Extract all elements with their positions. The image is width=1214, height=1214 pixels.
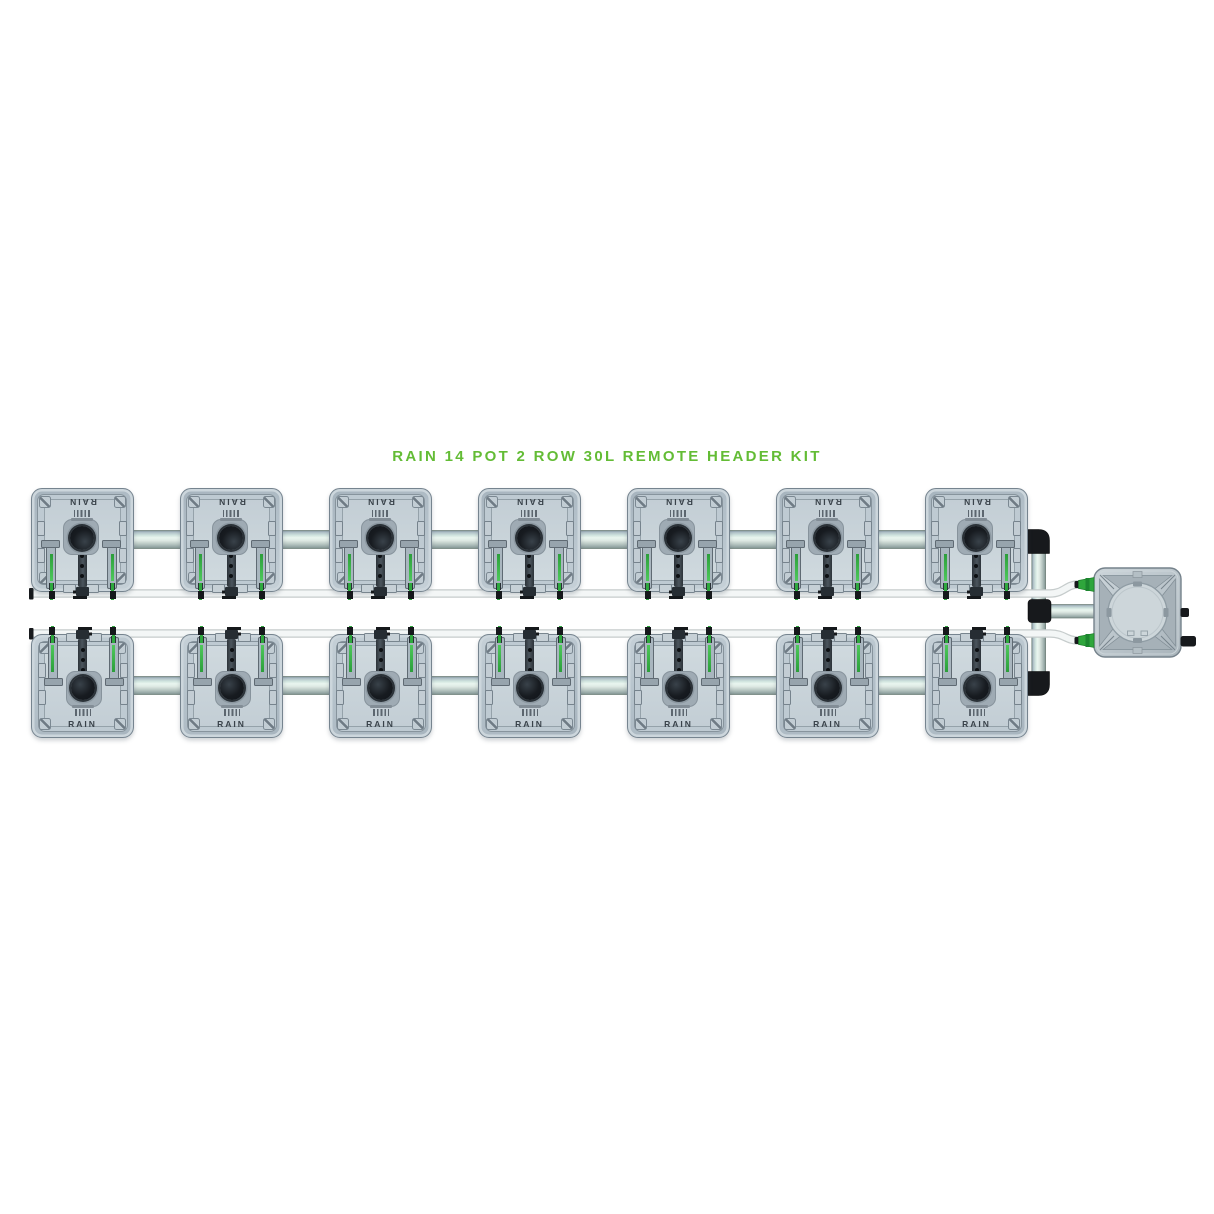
return-manifold bbox=[1028, 530, 1095, 696]
side-tab bbox=[336, 521, 344, 536]
pot-top-1: RAIN bbox=[31, 488, 134, 592]
tube-clip bbox=[794, 627, 800, 636]
stem-hole bbox=[528, 574, 532, 578]
stem-cap bbox=[225, 630, 238, 639]
tube-clip bbox=[408, 591, 414, 600]
pot-brand-label: RAIN bbox=[329, 497, 432, 507]
tube-clip bbox=[645, 591, 651, 600]
green-clip bbox=[647, 645, 651, 672]
outlet-stub-large bbox=[1181, 636, 1197, 647]
rail-foot bbox=[254, 678, 273, 686]
pot-brand-label: RAIN bbox=[180, 719, 283, 729]
feed-tubes bbox=[29, 585, 1081, 641]
tube-clip bbox=[557, 591, 563, 600]
rail-foot bbox=[848, 540, 867, 548]
stem-hole bbox=[81, 564, 85, 568]
drip-rail-right bbox=[1003, 637, 1013, 682]
pot-fine-print bbox=[966, 705, 988, 709]
tube-clip bbox=[259, 591, 265, 600]
rail-foot bbox=[787, 540, 806, 548]
drip-rail-left bbox=[793, 637, 803, 682]
side-tab bbox=[865, 690, 873, 705]
side-tab bbox=[932, 663, 940, 678]
side-tab bbox=[567, 521, 575, 536]
side-tab bbox=[38, 663, 46, 678]
stem-hole bbox=[975, 648, 979, 652]
stem-cap bbox=[76, 587, 89, 596]
pot-bottom-4: RAIN bbox=[478, 634, 581, 738]
stem-cap bbox=[821, 630, 834, 639]
pot-brand-label: RAIN bbox=[329, 719, 432, 729]
pot-vent-lines bbox=[969, 510, 985, 517]
stem-hole bbox=[826, 648, 830, 652]
pot-fine-print bbox=[519, 518, 541, 522]
tube-clip bbox=[49, 591, 55, 600]
green-clip bbox=[646, 554, 650, 581]
stem-cap bbox=[225, 587, 238, 596]
green-clip bbox=[1005, 554, 1009, 581]
plumbing-diagram bbox=[0, 0, 1214, 1214]
pot-center-hole bbox=[816, 676, 840, 700]
side-tab bbox=[716, 663, 724, 678]
tube-clip bbox=[49, 627, 55, 636]
side-tab bbox=[1014, 690, 1022, 705]
side-tab bbox=[485, 521, 493, 536]
stem-cap bbox=[374, 587, 387, 596]
rail-foot bbox=[552, 678, 571, 686]
side-tab bbox=[269, 548, 277, 563]
outlet-stub-small bbox=[1181, 608, 1190, 617]
manifold-elbow-bottom bbox=[1028, 672, 1050, 696]
pot-center-hole bbox=[667, 676, 691, 700]
side-tab bbox=[716, 521, 724, 536]
side-tab bbox=[567, 690, 575, 705]
pot-vent-lines bbox=[224, 510, 240, 517]
pot-fine-print bbox=[668, 705, 690, 709]
stem-hole bbox=[677, 574, 681, 578]
green-clip bbox=[409, 554, 413, 581]
green-clip bbox=[707, 554, 711, 581]
side-tab bbox=[485, 663, 493, 678]
stem-cap bbox=[672, 587, 685, 596]
green-clip bbox=[51, 645, 55, 672]
green-clip bbox=[796, 645, 800, 672]
pot-fine-print bbox=[966, 518, 988, 522]
drip-rail-left bbox=[197, 637, 207, 682]
side-tab bbox=[865, 521, 873, 536]
green-clip bbox=[50, 554, 54, 581]
drip-rail-left bbox=[346, 637, 356, 682]
pot-fine-print bbox=[668, 518, 690, 522]
side-tab bbox=[336, 548, 344, 563]
pot-vent-lines bbox=[373, 510, 389, 517]
pot-brand-label: RAIN bbox=[31, 719, 134, 729]
stem-hole bbox=[230, 564, 234, 568]
stem-hole bbox=[826, 564, 830, 568]
side-tab bbox=[269, 663, 277, 678]
rail-foot bbox=[489, 540, 508, 548]
side-tab bbox=[187, 663, 195, 678]
side-tab bbox=[716, 690, 724, 705]
tube-clip bbox=[855, 627, 861, 636]
drip-rail-left bbox=[942, 637, 952, 682]
side-tab bbox=[567, 548, 575, 563]
rail-foot bbox=[44, 678, 63, 686]
pot-vent-lines bbox=[969, 709, 985, 716]
green-clip bbox=[1006, 645, 1010, 672]
tube-clip bbox=[706, 627, 712, 636]
tube-clip bbox=[1004, 591, 1010, 600]
green-clip bbox=[200, 645, 204, 672]
side-tab bbox=[187, 521, 195, 536]
manifold-elbow-top bbox=[1028, 530, 1050, 554]
side-tab bbox=[567, 663, 575, 678]
pot-vent-lines bbox=[522, 709, 538, 716]
stem-hole bbox=[677, 658, 681, 662]
drip-rail-right bbox=[407, 637, 417, 682]
pot-bottom-3: RAIN bbox=[329, 634, 432, 738]
side-tab bbox=[783, 663, 791, 678]
rail-foot bbox=[701, 678, 720, 686]
pot-fine-print bbox=[221, 705, 243, 709]
pot-bottom-1: RAIN bbox=[31, 634, 134, 738]
stem-hole bbox=[528, 648, 532, 652]
stem-hole bbox=[81, 648, 85, 652]
side-tab bbox=[38, 548, 46, 563]
inlet-fitting-bottom bbox=[1075, 634, 1095, 648]
side-tab bbox=[865, 548, 873, 563]
green-clip bbox=[559, 645, 563, 672]
stem-hole bbox=[81, 574, 85, 578]
pot-vent-lines bbox=[522, 510, 538, 517]
side-tab bbox=[418, 663, 426, 678]
tube-clip bbox=[855, 591, 861, 600]
rail-foot bbox=[401, 540, 420, 548]
side-tab bbox=[38, 521, 46, 536]
side-tab bbox=[38, 690, 46, 705]
pot-top-2: RAIN bbox=[180, 488, 283, 592]
side-tab bbox=[634, 663, 642, 678]
stem-hole bbox=[677, 648, 681, 652]
tube-clip bbox=[706, 591, 712, 600]
side-tab bbox=[1014, 548, 1022, 563]
green-clip bbox=[199, 554, 203, 581]
pot-bottom-6: RAIN bbox=[776, 634, 879, 738]
green-clip bbox=[558, 554, 562, 581]
pot-brand-label: RAIN bbox=[180, 497, 283, 507]
stem-hole bbox=[528, 658, 532, 662]
rail-foot bbox=[699, 540, 718, 548]
side-tab bbox=[716, 548, 724, 563]
side-tab bbox=[187, 548, 195, 563]
pot-top-6: RAIN bbox=[776, 488, 879, 592]
green-clip bbox=[708, 645, 712, 672]
side-tab bbox=[336, 663, 344, 678]
pot-fine-print bbox=[817, 705, 839, 709]
manifold-tee bbox=[1028, 600, 1051, 623]
pot-top-4: RAIN bbox=[478, 488, 581, 592]
rail-foot bbox=[789, 678, 808, 686]
stem-cap bbox=[76, 630, 89, 639]
side-tab bbox=[418, 521, 426, 536]
side-tab bbox=[336, 690, 344, 705]
side-tab bbox=[1014, 521, 1022, 536]
pot-fine-print bbox=[221, 518, 243, 522]
side-tab bbox=[120, 690, 128, 705]
stem-hole bbox=[975, 658, 979, 662]
pot-fine-print bbox=[370, 518, 392, 522]
stem-hole bbox=[230, 648, 234, 652]
product-diagram: RAIN 14 POT 2 ROW 30L REMOTE HEADER KIT bbox=[0, 0, 1214, 1214]
pot-brand-label: RAIN bbox=[627, 497, 730, 507]
side-tab bbox=[865, 663, 873, 678]
side-tab bbox=[269, 521, 277, 536]
tube-clip bbox=[408, 627, 414, 636]
rail-foot bbox=[999, 678, 1018, 686]
stem-hole bbox=[528, 564, 532, 568]
pot-bottom-7: RAIN bbox=[925, 634, 1028, 738]
green-clip bbox=[795, 554, 799, 581]
tube-clip bbox=[259, 627, 265, 636]
tube-clip bbox=[557, 627, 563, 636]
side-tab bbox=[634, 690, 642, 705]
stem-cap bbox=[821, 587, 834, 596]
pot-vent-lines bbox=[820, 709, 836, 716]
drip-rail-right bbox=[258, 637, 268, 682]
pot-center-hole bbox=[518, 676, 542, 700]
stem-hole bbox=[81, 658, 85, 662]
pot-brand-label: RAIN bbox=[31, 497, 134, 507]
rail-foot bbox=[103, 540, 122, 548]
drip-rail-right bbox=[705, 637, 715, 682]
pot-center-hole bbox=[71, 676, 95, 700]
side-tab bbox=[187, 690, 195, 705]
side-tab bbox=[418, 690, 426, 705]
pot-center-hole bbox=[369, 676, 393, 700]
side-tab bbox=[783, 521, 791, 536]
rail-foot bbox=[340, 540, 359, 548]
side-tab bbox=[634, 548, 642, 563]
side-tab bbox=[120, 663, 128, 678]
side-tab bbox=[120, 548, 128, 563]
pot-bottom-2: RAIN bbox=[180, 634, 283, 738]
product-title: RAIN 14 POT 2 ROW 30L REMOTE HEADER KIT bbox=[392, 448, 821, 465]
rail-foot bbox=[193, 678, 212, 686]
drip-rail-right bbox=[109, 637, 119, 682]
rail-foot bbox=[550, 540, 569, 548]
pot-fine-print bbox=[519, 705, 541, 709]
stem-cap bbox=[970, 630, 983, 639]
green-clip bbox=[856, 554, 860, 581]
pot-brand-label: RAIN bbox=[776, 719, 879, 729]
stem-hole bbox=[230, 574, 234, 578]
tube-clip bbox=[110, 627, 116, 636]
side-tab bbox=[932, 548, 940, 563]
green-clip bbox=[857, 645, 861, 672]
pot-vent-lines bbox=[75, 709, 91, 716]
side-tab bbox=[783, 548, 791, 563]
drip-rail-left bbox=[495, 637, 505, 682]
stem-cap bbox=[523, 630, 536, 639]
stem-hole bbox=[379, 648, 383, 652]
pump-lid bbox=[1108, 583, 1167, 642]
pot-vent-lines bbox=[224, 709, 240, 716]
tube-clip bbox=[943, 591, 949, 600]
stem-hole bbox=[379, 564, 383, 568]
pot-vent-lines bbox=[820, 510, 836, 517]
stem-cap bbox=[523, 587, 536, 596]
pot-fine-print bbox=[370, 705, 392, 709]
stem-hole bbox=[975, 564, 979, 568]
manifold-horizontal-pipe bbox=[1048, 605, 1095, 619]
pot-fine-print bbox=[72, 518, 94, 522]
stem-hole bbox=[379, 658, 383, 662]
pot-brand-label: RAIN bbox=[776, 497, 879, 507]
tube-clip bbox=[347, 591, 353, 600]
side-tab bbox=[783, 690, 791, 705]
rail-foot bbox=[403, 678, 422, 686]
pot-fine-print bbox=[72, 705, 94, 709]
stem-cap bbox=[672, 630, 685, 639]
pot-center-hole bbox=[965, 676, 989, 700]
tube-clip bbox=[645, 627, 651, 636]
rail-foot bbox=[640, 678, 659, 686]
stem-hole bbox=[826, 574, 830, 578]
pot-vent-lines bbox=[671, 709, 687, 716]
rail-foot bbox=[850, 678, 869, 686]
pot-brand-label: RAIN bbox=[925, 719, 1028, 729]
rail-foot bbox=[491, 678, 510, 686]
pot-vent-lines bbox=[373, 709, 389, 716]
tube-clip bbox=[496, 627, 502, 636]
stem-hole bbox=[826, 658, 830, 662]
green-clip bbox=[349, 645, 353, 672]
green-clip bbox=[261, 645, 265, 672]
tube-clip bbox=[198, 591, 204, 600]
drip-rail-right bbox=[556, 637, 566, 682]
rail-foot bbox=[936, 540, 955, 548]
rail-foot bbox=[42, 540, 61, 548]
inlet-fitting-top bbox=[1075, 578, 1095, 592]
tube-clip bbox=[198, 627, 204, 636]
pot-top-5: RAIN bbox=[627, 488, 730, 592]
pot-vent-lines bbox=[75, 510, 91, 517]
green-clip bbox=[498, 645, 502, 672]
rail-foot bbox=[342, 678, 361, 686]
side-tab bbox=[120, 521, 128, 536]
rail-foot bbox=[997, 540, 1016, 548]
tube-clip bbox=[943, 627, 949, 636]
side-tab bbox=[418, 548, 426, 563]
rail-foot bbox=[252, 540, 271, 548]
pot-vent-lines bbox=[671, 510, 687, 517]
pot-brand-label: RAIN bbox=[478, 497, 581, 507]
drip-rail-right bbox=[854, 637, 864, 682]
side-tab bbox=[485, 690, 493, 705]
tube-clip bbox=[110, 591, 116, 600]
drip-rail-left bbox=[48, 637, 58, 682]
rail-foot bbox=[105, 678, 124, 686]
stem-cap bbox=[970, 587, 983, 596]
stem-hole bbox=[677, 564, 681, 568]
rail-foot bbox=[938, 678, 957, 686]
pot-bottom-5: RAIN bbox=[627, 634, 730, 738]
green-clip bbox=[944, 554, 948, 581]
tube-clip bbox=[347, 627, 353, 636]
green-clip bbox=[945, 645, 949, 672]
pot-top-3: RAIN bbox=[329, 488, 432, 592]
side-tab bbox=[485, 548, 493, 563]
side-tab bbox=[932, 690, 940, 705]
pot-brand-label: RAIN bbox=[925, 497, 1028, 507]
pot-brand-label: RAIN bbox=[478, 719, 581, 729]
green-clip bbox=[410, 645, 414, 672]
stem-cap bbox=[374, 630, 387, 639]
green-clip bbox=[497, 554, 501, 581]
side-tab bbox=[269, 690, 277, 705]
green-clip bbox=[348, 554, 352, 581]
green-clip bbox=[260, 554, 264, 581]
green-clip bbox=[112, 645, 116, 672]
pot-top-7: RAIN bbox=[925, 488, 1028, 592]
side-tab bbox=[634, 521, 642, 536]
pot-center-hole bbox=[220, 676, 244, 700]
pot-brand-label: RAIN bbox=[627, 719, 730, 729]
tube-clip bbox=[794, 591, 800, 600]
tube-clip bbox=[1004, 627, 1010, 636]
drip-rail-left bbox=[644, 637, 654, 682]
stem-hole bbox=[975, 574, 979, 578]
stem-hole bbox=[230, 658, 234, 662]
side-tab bbox=[932, 521, 940, 536]
tube-clip bbox=[496, 591, 502, 600]
rail-foot bbox=[191, 540, 210, 548]
green-clip bbox=[111, 554, 115, 581]
pot-fine-print bbox=[817, 518, 839, 522]
side-tab bbox=[1014, 663, 1022, 678]
stem-hole bbox=[379, 574, 383, 578]
rail-foot bbox=[638, 540, 657, 548]
